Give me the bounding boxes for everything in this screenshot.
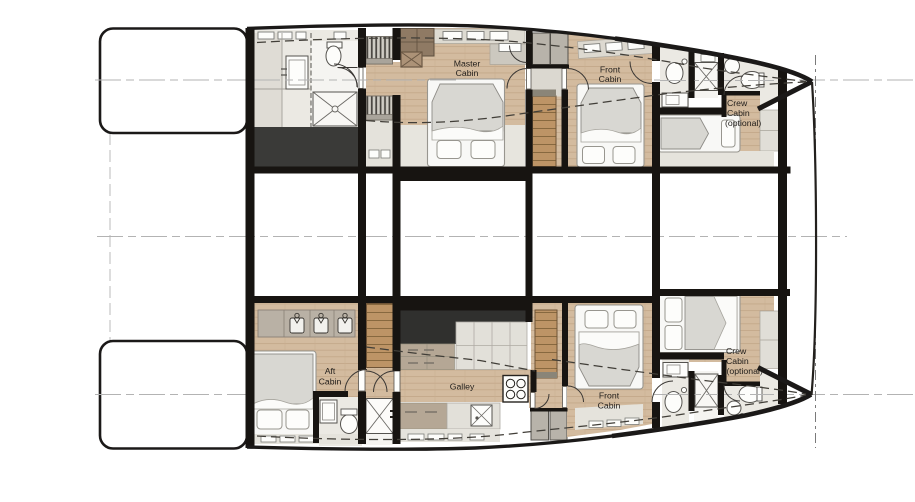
svg-text:Front: Front: [600, 65, 621, 75]
svg-text:Master: Master: [454, 59, 481, 69]
svg-text:Cabin: Cabin: [319, 377, 342, 387]
svg-text:Cabin: Cabin: [599, 74, 622, 84]
svg-text:Galley: Galley: [450, 382, 475, 392]
svg-text:(optional): (optional): [727, 366, 763, 376]
svg-text:(optional): (optional): [725, 118, 761, 128]
svg-text:Crew: Crew: [726, 346, 747, 356]
svg-text:Aft: Aft: [325, 366, 336, 376]
svg-text:Cabin: Cabin: [598, 401, 621, 411]
svg-text:Crew: Crew: [727, 98, 748, 108]
svg-text:Cabin: Cabin: [727, 108, 750, 118]
svg-text:Cabin: Cabin: [456, 68, 479, 78]
svg-text:Front: Front: [599, 391, 620, 401]
svg-text:Cabin: Cabin: [726, 356, 749, 366]
